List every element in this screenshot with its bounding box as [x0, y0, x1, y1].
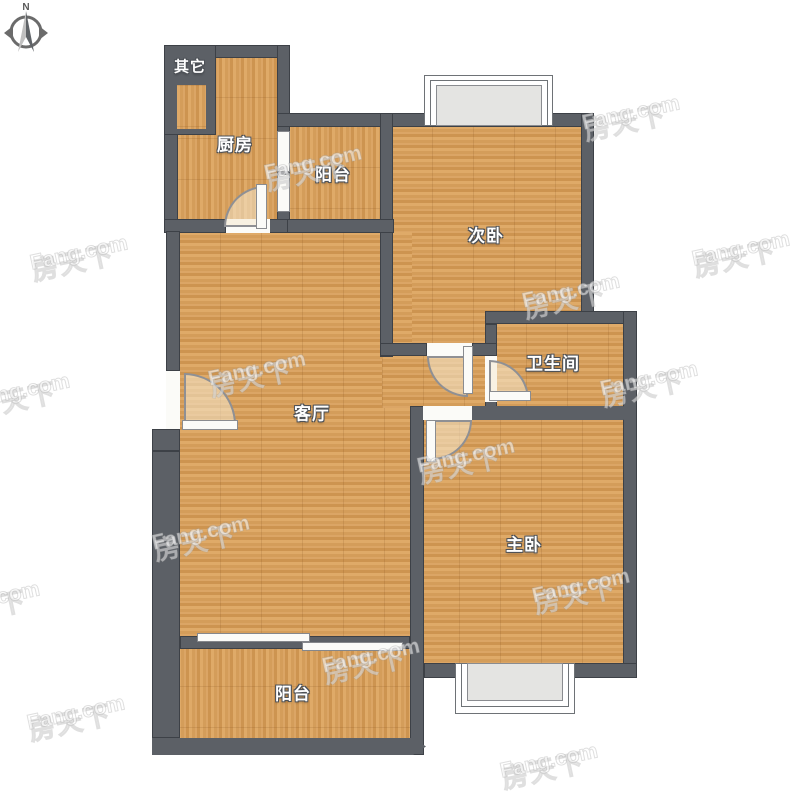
wall: [287, 219, 394, 233]
wall: [152, 451, 180, 738]
kitchen-balcony-window: [277, 174, 290, 212]
wall: [380, 113, 393, 357]
door-leaf-entrance: [182, 420, 238, 430]
wall: [472, 343, 497, 356]
door-opening-master: [423, 406, 472, 420]
sliding-door-panel: [302, 642, 403, 651]
floor-niche: [177, 85, 206, 129]
room-label-bathroom: 卫生间: [526, 350, 580, 375]
room-label-master-bedroom: 主卧: [506, 531, 542, 556]
room-label-balcony-bottom: 阳台: [275, 680, 311, 705]
wall: [623, 311, 637, 676]
door-leaf-kitchen: [256, 184, 267, 229]
kitchen-balcony-window: [277, 131, 290, 172]
room-label-balcony-top: 阳台: [315, 161, 351, 186]
bay-window-top: [436, 85, 542, 126]
door-leaf-master: [426, 420, 436, 462]
room-label-living-room: 客厅: [294, 400, 330, 425]
door-leaf-second-bedroom: [463, 346, 473, 394]
wall: [277, 113, 394, 127]
compass-north-icon: N: [2, 0, 54, 64]
sliding-door-panel: [197, 633, 310, 642]
wall: [581, 113, 594, 317]
room-label-second-bedroom: 次卧: [468, 222, 504, 247]
floor-plan: 其它 厨房 阳台 次卧 卫生间 客厅 主卧 阳台 房天下Fang.com 房天下…: [0, 0, 800, 800]
wall: [166, 231, 180, 371]
floor-living-room: [179, 232, 412, 636]
room-label-other: 其它: [174, 56, 206, 77]
wall: [410, 406, 424, 755]
wall: [380, 343, 427, 356]
bay-window-bottom: [467, 663, 563, 701]
room-label-kitchen: 厨房: [217, 131, 253, 156]
door-opening-entrance: [166, 371, 180, 429]
wall: [152, 429, 180, 451]
door-leaf-bathroom: [489, 391, 531, 401]
wall: [152, 738, 426, 755]
wall: [485, 311, 636, 324]
